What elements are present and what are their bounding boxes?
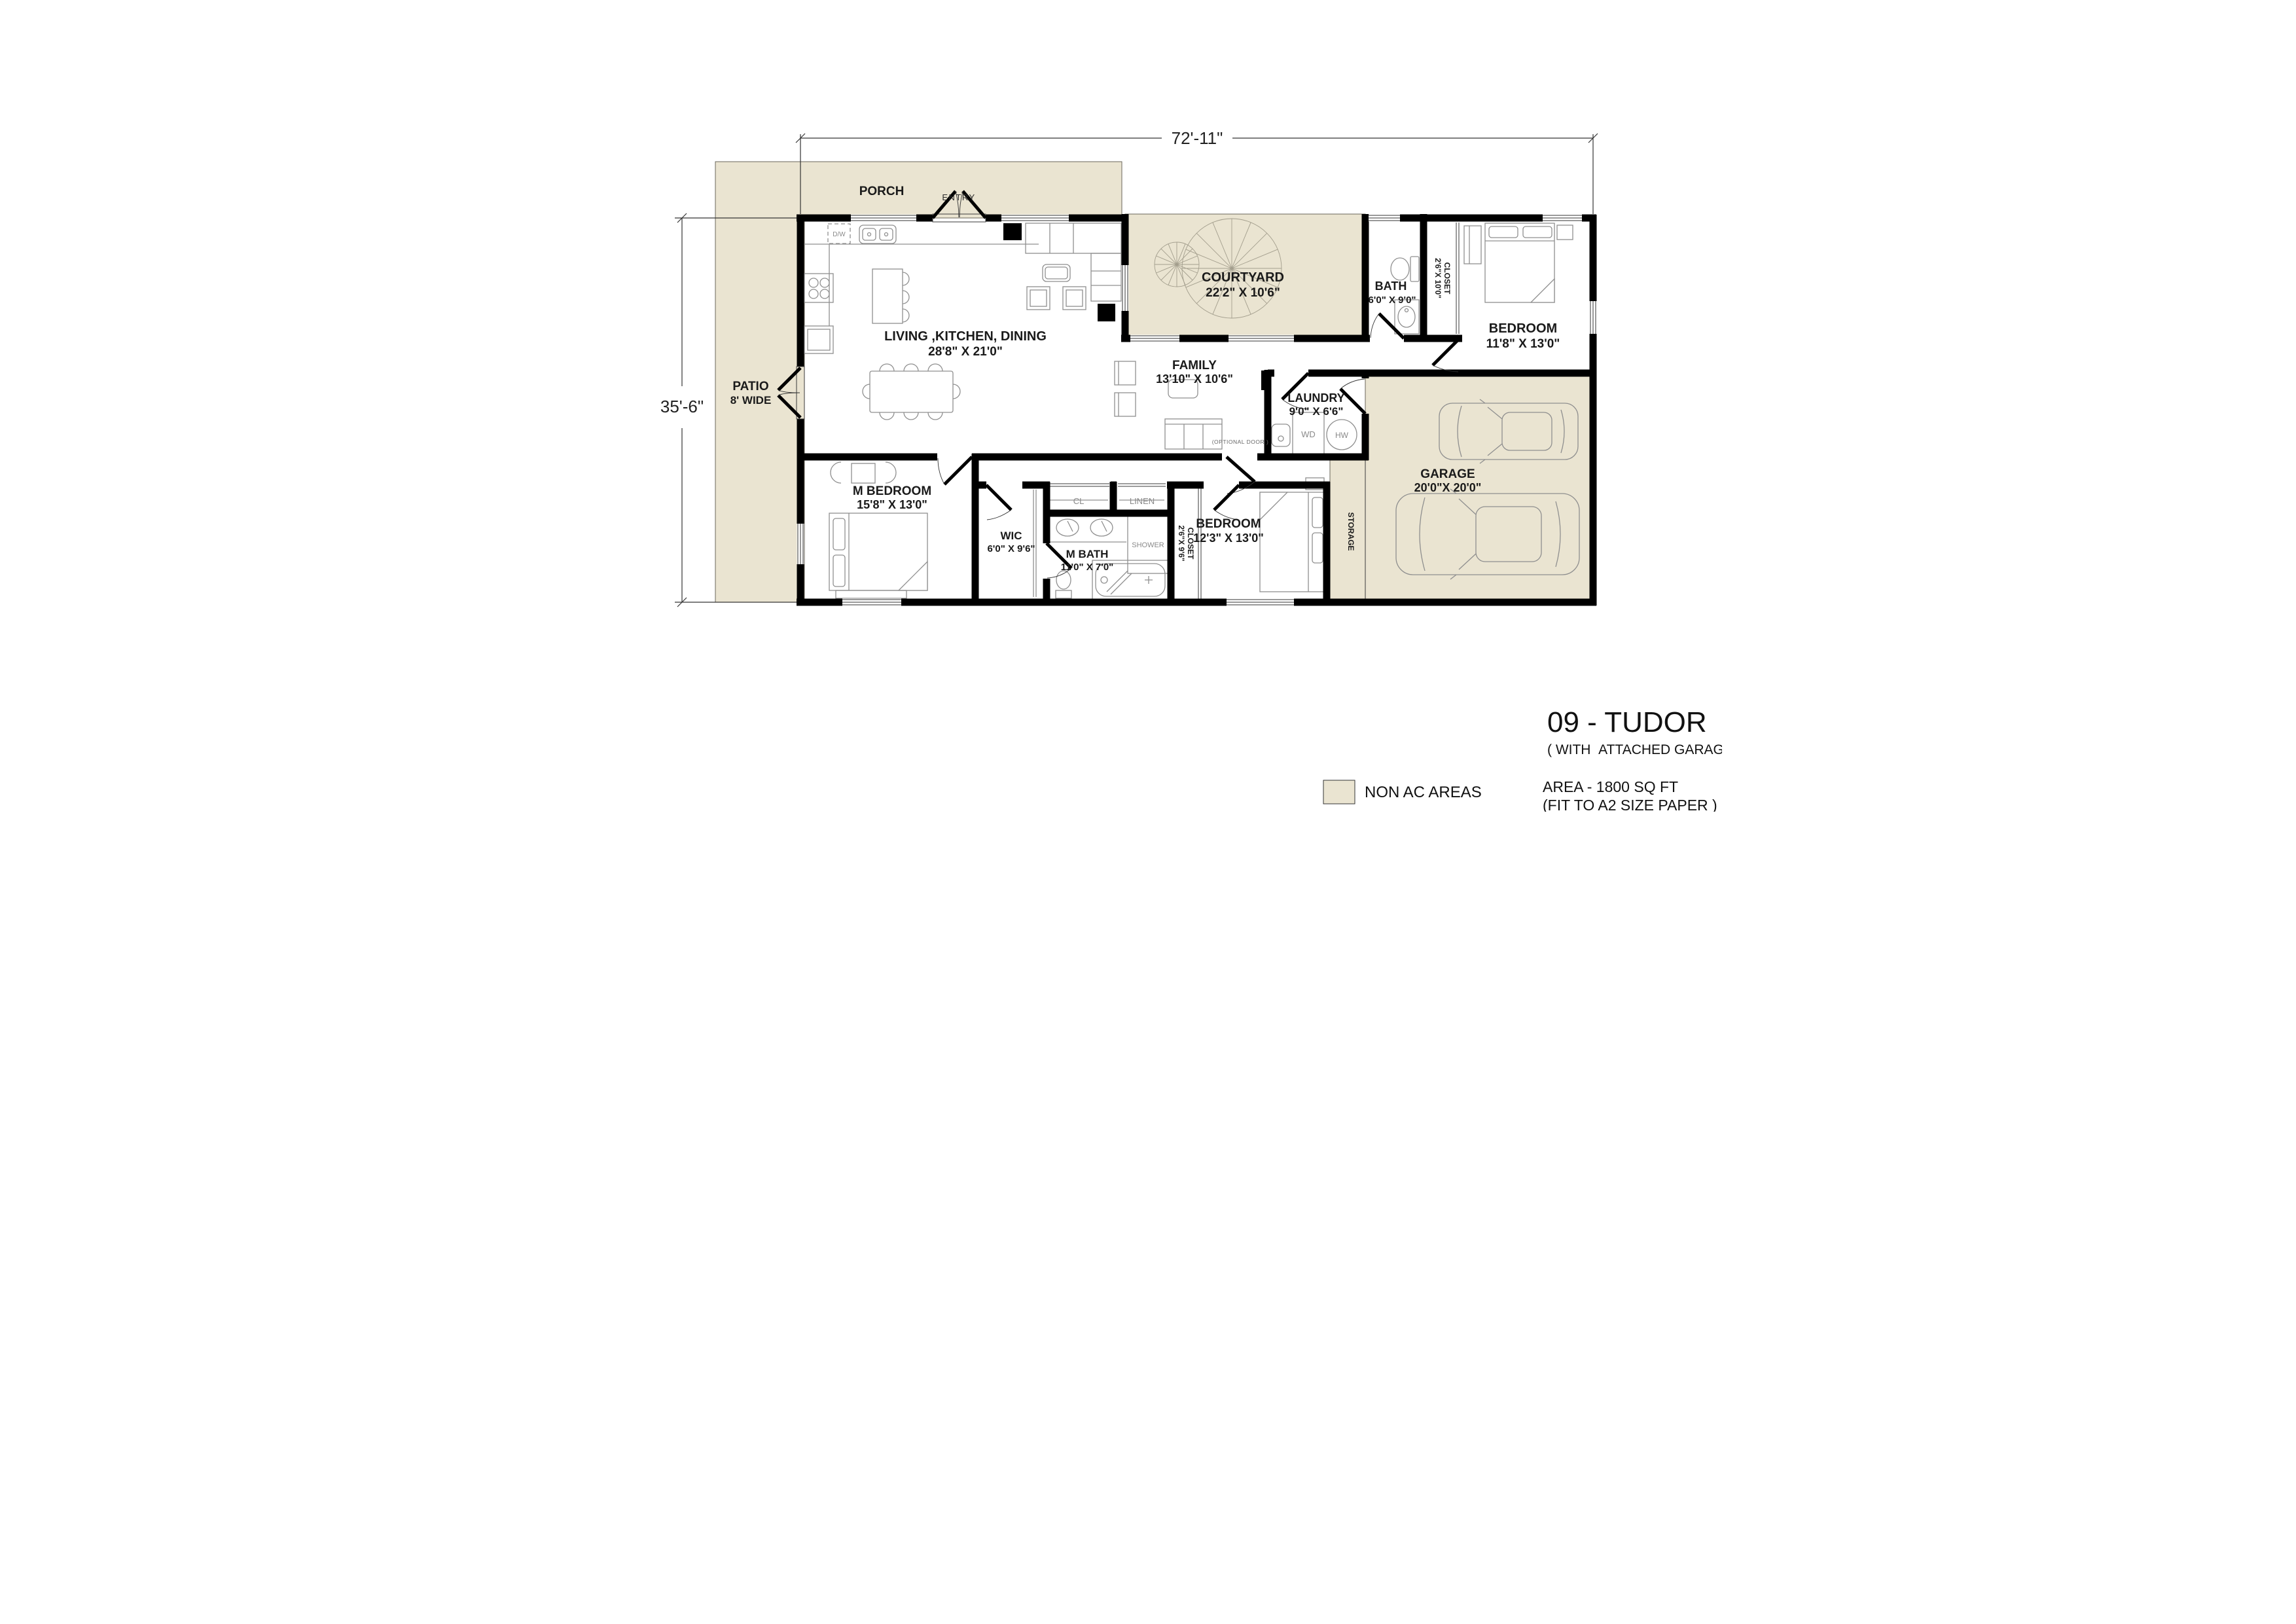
cl-label: CL bbox=[1073, 496, 1085, 506]
width-dimension-text: 72'-11" bbox=[1172, 128, 1223, 148]
plan-area: AREA - 1800 SQ FT bbox=[1543, 778, 1678, 795]
bedroom-bottom-door bbox=[1214, 485, 1239, 520]
bed bbox=[829, 513, 927, 590]
bedroom-bottom-dims: 12'3" X 13'0" bbox=[1193, 532, 1264, 545]
shower-enclosure bbox=[1107, 516, 1168, 594]
optional-door-label: (OPTIONAL DOOR ) bbox=[1212, 439, 1269, 445]
bedroom-table bbox=[852, 463, 875, 483]
m-bath-label: M BATH bbox=[1066, 548, 1109, 560]
window bbox=[851, 215, 916, 222]
bed bbox=[1260, 492, 1325, 592]
bedroom-right-furniture bbox=[1464, 223, 1573, 302]
family-label: FAMILY bbox=[1172, 359, 1217, 372]
floor-plan-sheet: 72'-11" 35'-6" bbox=[574, 0, 1722, 812]
laundry-sink-icon bbox=[1272, 424, 1290, 446]
porch-label: PORCH bbox=[859, 185, 905, 198]
armchair bbox=[1027, 287, 1050, 310]
living-label: LIVING ,KITCHEN, DINING bbox=[884, 329, 1047, 344]
m-bedroom-dims: 15'8" X 13'0" bbox=[857, 498, 927, 511]
window bbox=[842, 599, 901, 606]
storage-label: STORAGE bbox=[1346, 512, 1355, 550]
legend: NON AC AREAS bbox=[1323, 780, 1482, 804]
legend-label: NON AC AREAS bbox=[1365, 784, 1482, 801]
plan-subtitle: ( WITH ATTACHED GARAGE ) bbox=[1547, 742, 1722, 757]
wic-dims: 6'0" X 9'6" bbox=[987, 543, 1035, 554]
living-dims: 28'8" X 21'0" bbox=[928, 345, 1003, 359]
bath-dims: 6'0" X 9'0" bbox=[1368, 295, 1416, 306]
floor-plan-drawing: 72'-11" 35'-6" bbox=[574, 0, 1722, 812]
m-bedroom-furniture bbox=[829, 462, 927, 598]
bedroom-bottom-furniture bbox=[1260, 478, 1325, 592]
dresser bbox=[836, 590, 906, 598]
kitchen-island bbox=[872, 269, 909, 323]
living-sofa-set bbox=[1003, 223, 1121, 321]
plan-paper: (FIT TO A2 SIZE PAPER ) bbox=[1543, 797, 1717, 812]
linen-label: LINEN bbox=[1130, 496, 1155, 506]
laundry-dims: 9'0" X 6'6" bbox=[1289, 405, 1344, 418]
window bbox=[1369, 215, 1400, 222]
laundry-fixtures: WD HW bbox=[1272, 412, 1357, 456]
bedroom-right-door bbox=[1433, 341, 1458, 372]
courtyard-label: COURTYARD bbox=[1202, 270, 1284, 285]
toilet-icon bbox=[1391, 257, 1419, 281]
shower-label: SHOWER bbox=[1132, 541, 1164, 549]
wic-label: WIC bbox=[1000, 530, 1022, 542]
bedroom-chair bbox=[831, 462, 841, 483]
wic-door bbox=[986, 485, 1011, 520]
toilet-icon bbox=[1056, 571, 1071, 598]
patio-label: PATIO bbox=[732, 380, 768, 393]
window bbox=[1122, 265, 1129, 311]
kitchen-sink-icon bbox=[859, 225, 896, 244]
window bbox=[1590, 301, 1597, 334]
window bbox=[1229, 335, 1294, 342]
window bbox=[1001, 215, 1069, 222]
closet-top-label: CLOSET2'6"X 10'0" bbox=[1433, 258, 1452, 298]
bath-door bbox=[1371, 314, 1404, 338]
bedroom-chair bbox=[886, 462, 896, 483]
entry-label: ENTRY bbox=[942, 192, 975, 202]
legend-swatch bbox=[1323, 780, 1355, 804]
fridge-icon bbox=[804, 326, 833, 353]
window bbox=[797, 524, 804, 564]
patio-dims: 8' WIDE bbox=[730, 394, 772, 406]
garage-label: GARAGE bbox=[1420, 467, 1475, 481]
height-dimension-text: 35'-6" bbox=[660, 397, 704, 416]
family-chair bbox=[1115, 393, 1136, 416]
bedroom-bottom-label: BEDROOM bbox=[1196, 517, 1261, 531]
bath-label: BATH bbox=[1375, 280, 1407, 293]
family-chair bbox=[1115, 361, 1136, 385]
dishwasher-label: D/W bbox=[833, 231, 846, 238]
side-table-icon bbox=[1098, 304, 1115, 321]
bedroom-right-label: BEDROOM bbox=[1489, 321, 1557, 336]
bed bbox=[1485, 223, 1554, 302]
m-bath-dims: 11'0" X 7'0" bbox=[1061, 562, 1114, 573]
nightstand bbox=[1557, 225, 1573, 240]
window bbox=[1130, 335, 1179, 342]
family-dims: 13'10" X 10'6" bbox=[1156, 372, 1233, 386]
closet-bottom-label: CLOSET2'6"X 9'6" bbox=[1177, 525, 1195, 561]
dresser bbox=[1464, 226, 1481, 264]
dining-set bbox=[863, 364, 960, 420]
laundry-label: LAUNDRY bbox=[1287, 391, 1344, 405]
m-bedroom-label: M BEDROOM bbox=[853, 484, 931, 498]
water-heater-label: HW bbox=[1335, 431, 1349, 440]
armchair bbox=[1063, 287, 1086, 310]
plan-title: 09 - TUDOR bbox=[1547, 706, 1707, 738]
m-bedroom-door bbox=[938, 457, 972, 484]
entry-cabinet-icon bbox=[1003, 223, 1022, 240]
window bbox=[1543, 215, 1582, 222]
title-block: 09 - TUDOR ( WITH ATTACHED GARAGE ) AREA… bbox=[1543, 706, 1722, 812]
tree-icon bbox=[1155, 242, 1199, 287]
bedroom-right-dims: 11'8" X 13'0" bbox=[1486, 337, 1560, 351]
garage-dims: 20'0"X 20'0" bbox=[1414, 481, 1482, 494]
courtyard-dims: 22'2" X 10'6" bbox=[1206, 286, 1280, 300]
window bbox=[1227, 599, 1294, 606]
tree-icon bbox=[1182, 219, 1282, 318]
washer-dryer-label: WD bbox=[1301, 429, 1316, 439]
